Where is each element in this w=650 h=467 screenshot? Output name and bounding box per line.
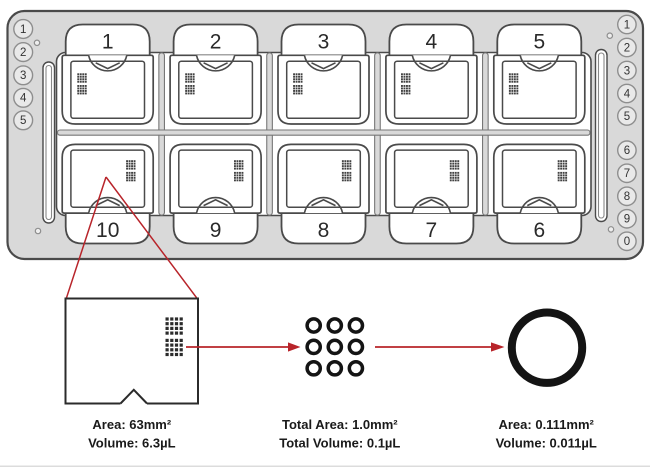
svg-text:8: 8 [624,191,630,203]
svg-text:0: 0 [624,236,630,248]
svg-text:Area: 0.111mm²: Area: 0.111mm² [498,417,594,432]
svg-text:8: 8 [318,219,330,242]
svg-text:Volume: 0.011µL: Volume: 0.011µL [496,436,597,451]
svg-text:5: 5 [624,111,630,123]
svg-text:Area: 63mm²: Area: 63mm² [92,417,171,432]
svg-text:6: 6 [533,219,545,242]
svg-text:4: 4 [20,93,27,105]
svg-text:7: 7 [624,168,630,180]
svg-text:4: 4 [426,31,438,54]
svg-text:3: 3 [20,70,26,82]
svg-text:3: 3 [624,65,630,77]
svg-text:4: 4 [624,88,631,100]
svg-text:7: 7 [426,219,438,242]
svg-text:Total Area: 1.0mm²: Total Area: 1.0mm² [282,417,398,432]
svg-text:2: 2 [210,31,222,54]
svg-text:9: 9 [210,219,222,242]
svg-text:6: 6 [624,145,630,157]
svg-text:Volume: 6.3µL: Volume: 6.3µL [88,436,175,451]
svg-text:5: 5 [533,31,545,54]
svg-text:10: 10 [96,219,119,242]
svg-text:Total Volume: 0.1µL: Total Volume: 0.1µL [279,436,400,451]
svg-text:2: 2 [20,47,26,59]
svg-text:5: 5 [20,115,26,127]
svg-text:1: 1 [20,24,26,36]
svg-text:2: 2 [624,42,630,54]
svg-text:1: 1 [624,19,630,31]
svg-text:3: 3 [318,31,330,54]
svg-text:1: 1 [102,31,114,54]
svg-text:9: 9 [624,214,630,226]
